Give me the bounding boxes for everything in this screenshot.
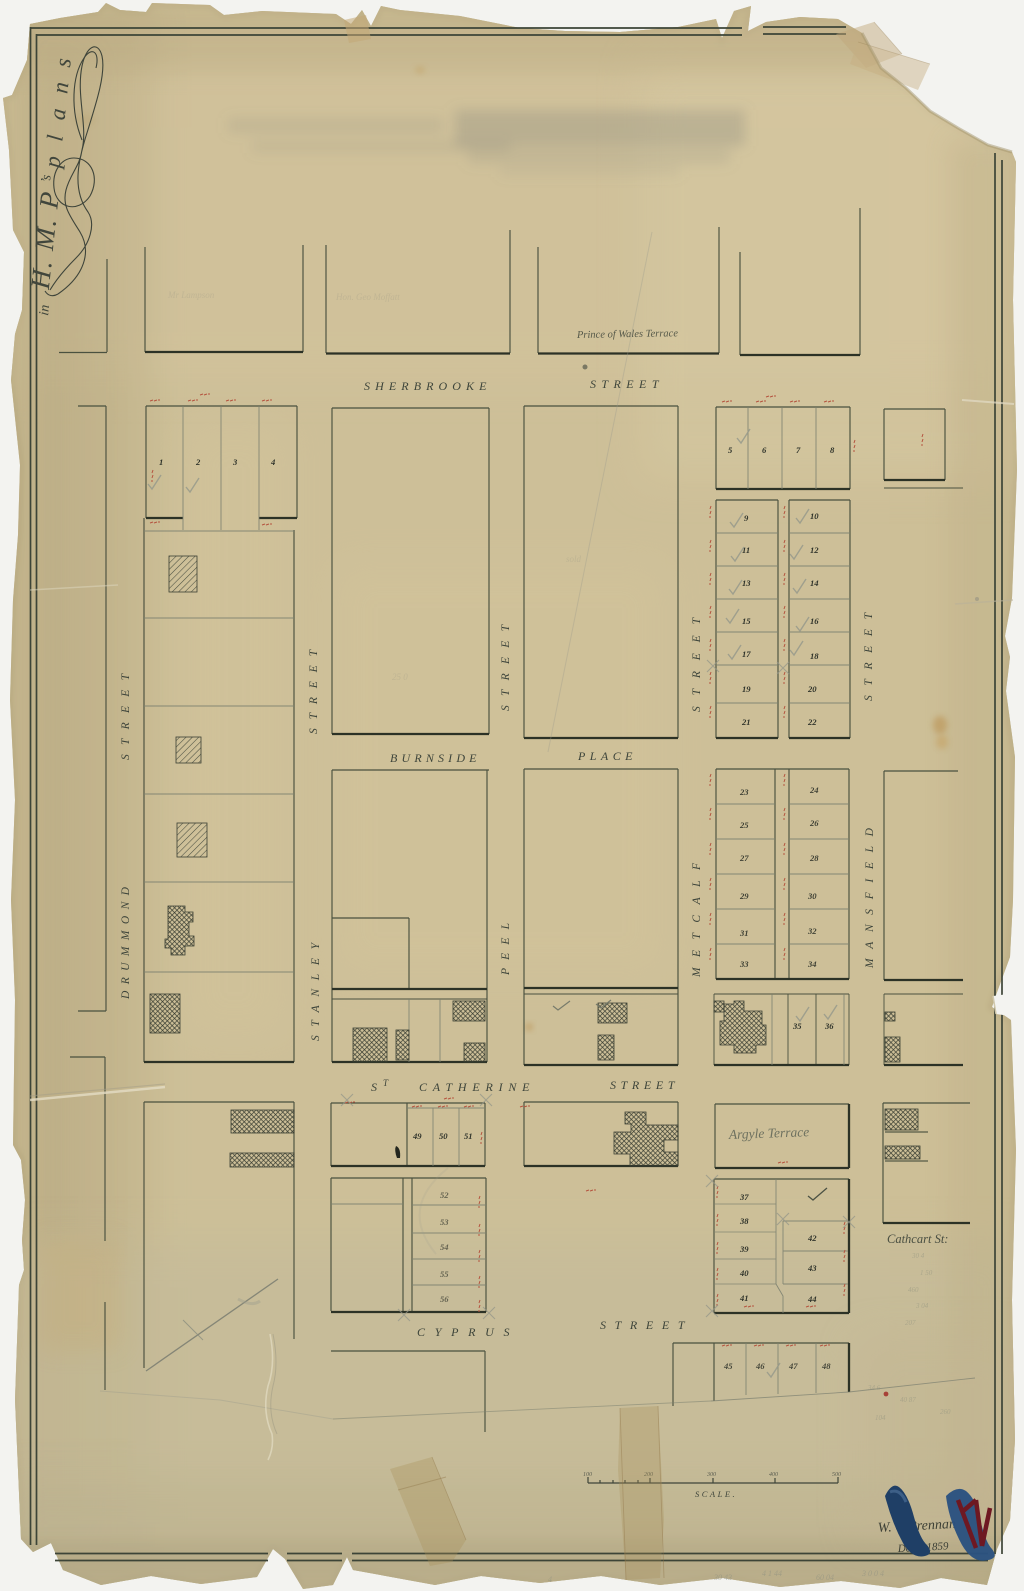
svg-text:45: 45: [723, 1361, 733, 1371]
svg-text:43: 43: [807, 1263, 817, 1273]
svg-text:26: 26: [809, 818, 819, 828]
svg-text:STREET: STREET: [610, 1078, 680, 1092]
svg-text:18: 18: [810, 651, 819, 661]
svg-text:DRUMMOND: DRUMMOND: [120, 881, 132, 1000]
svg-text:32: 32: [807, 926, 817, 936]
svg-text:9: 9: [744, 513, 749, 523]
svg-text:40 87: 40 87: [900, 1396, 916, 1404]
svg-text:30: 30: [807, 891, 817, 901]
svg-text:53: 53: [440, 1217, 449, 1227]
svg-text:20: 20: [807, 684, 817, 694]
svg-text:3 0 0 4: 3 0 0 4: [861, 1569, 884, 1578]
svg-text:25 0: 25 0: [392, 672, 408, 682]
svg-text:460: 460: [908, 1286, 919, 1294]
svg-text:Cathcart St:: Cathcart St:: [887, 1232, 948, 1246]
svg-text:30 43: 30 43: [713, 1573, 732, 1582]
svg-text:BURNSIDE: BURNSIDE: [390, 751, 482, 765]
svg-text:25: 25: [739, 820, 749, 830]
svg-text:T: T: [383, 1078, 394, 1088]
svg-text:35: 35: [792, 1021, 802, 1031]
svg-text:MANSFIELD: MANSFIELD: [864, 822, 876, 969]
svg-text:31: 31: [739, 928, 749, 938]
svg-text:500: 500: [832, 1472, 841, 1478]
svg-text:47: 47: [788, 1361, 798, 1371]
svg-text:39: 39: [739, 1244, 749, 1254]
svg-text:37: 37: [739, 1192, 749, 1202]
svg-text:1 50: 1 50: [920, 1269, 933, 1277]
svg-text:Prince of Wales Terrace: Prince of Wales Terrace: [576, 328, 679, 341]
svg-text:54: 54: [440, 1242, 449, 1252]
svg-text:1: 1: [159, 457, 163, 467]
svg-text:CATHERINE: CATHERINE: [419, 1080, 535, 1094]
svg-text:49: 49: [412, 1131, 422, 1141]
svg-text:19: 19: [742, 684, 751, 694]
svg-text:Hon. Geo Moffatt: Hon. Geo Moffatt: [335, 292, 400, 302]
svg-text:SHERBROOKE: SHERBROOKE: [364, 379, 492, 393]
svg-text:3: 3: [232, 457, 238, 467]
svg-text:2: 2: [195, 457, 201, 467]
svg-text:400: 400: [769, 1471, 778, 1478]
svg-text:15: 15: [742, 616, 751, 626]
svg-text:Mr Lampson: Mr Lampson: [167, 290, 215, 300]
svg-text:STREET: STREET: [590, 377, 664, 391]
svg-text:Argyle Terrace: Argyle Terrace: [728, 1124, 810, 1142]
svg-text:in: in: [37, 304, 53, 316]
svg-text:4 1 44: 4 1 44: [762, 1569, 782, 1578]
svg-text:3 04: 3 04: [915, 1302, 929, 1310]
svg-text:6: 6: [762, 445, 767, 455]
svg-text:4: 4: [548, 1575, 552, 1584]
svg-text:30 4: 30 4: [911, 1252, 925, 1260]
svg-text:207: 207: [905, 1319, 916, 1327]
svg-text:34: 34: [807, 959, 817, 969]
svg-text:44: 44: [807, 1294, 817, 1304]
svg-text:16: 16: [810, 616, 819, 626]
svg-text:13: 13: [742, 578, 751, 588]
svg-text:4: 4: [270, 457, 276, 467]
svg-text:8: 8: [830, 445, 835, 455]
svg-text:51: 51: [464, 1131, 473, 1141]
svg-text:14: 14: [810, 578, 819, 588]
svg-text:28: 28: [809, 853, 819, 863]
svg-text:21: 21: [741, 717, 751, 727]
svg-text:42: 42: [807, 1233, 817, 1243]
svg-text:PLACE: PLACE: [577, 749, 638, 763]
svg-text:38: 38: [739, 1216, 749, 1226]
svg-text:27: 27: [739, 853, 749, 863]
svg-text:33: 33: [739, 959, 749, 969]
svg-text:34 6: 34 6: [867, 1384, 881, 1392]
svg-text:7: 7: [796, 445, 801, 455]
svg-text:SCALE.: SCALE.: [695, 1489, 737, 1499]
svg-text:12: 12: [810, 545, 819, 555]
svg-text:50: 50: [439, 1131, 448, 1141]
svg-text:5: 5: [728, 445, 733, 455]
svg-text:S: S: [371, 1080, 383, 1094]
svg-text:260: 260: [940, 1408, 951, 1416]
svg-text:STANLEY: STANLEY: [310, 937, 322, 1041]
svg-text:sold: sold: [566, 554, 582, 564]
svg-text:60 04: 60 04: [816, 1573, 834, 1582]
svg-text:52: 52: [440, 1190, 449, 1200]
svg-text:104: 104: [875, 1414, 886, 1422]
svg-text:11: 11: [742, 545, 750, 555]
svg-text:24: 24: [809, 785, 819, 795]
svg-text:48: 48: [821, 1361, 831, 1371]
svg-text:46: 46: [755, 1361, 765, 1371]
svg-text:17: 17: [742, 649, 751, 659]
svg-text:100: 100: [583, 1472, 592, 1478]
svg-text:41: 41: [739, 1293, 749, 1303]
svg-text:300: 300: [706, 1472, 716, 1478]
svg-text:22: 22: [807, 717, 817, 727]
svg-text:29: 29: [739, 891, 749, 901]
svg-text:55: 55: [440, 1269, 449, 1279]
svg-text:36: 36: [824, 1021, 834, 1031]
svg-text:10: 10: [810, 511, 819, 521]
svg-text:56: 56: [440, 1294, 449, 1304]
svg-text:40: 40: [739, 1268, 749, 1278]
svg-text:23: 23: [739, 787, 749, 797]
